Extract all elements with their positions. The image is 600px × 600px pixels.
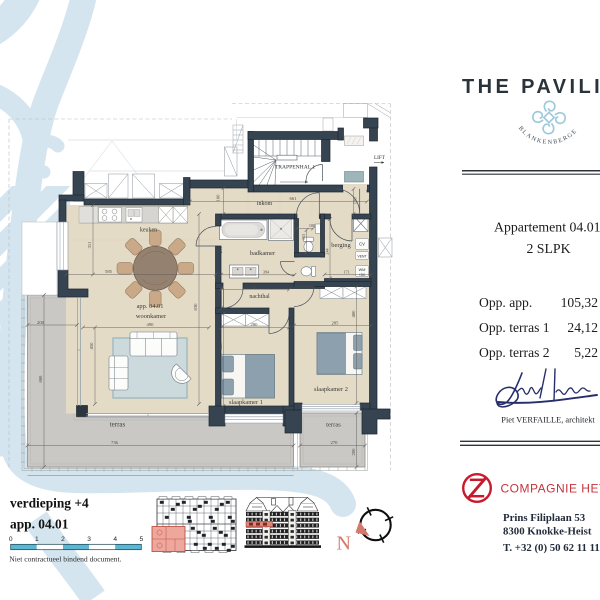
- svg-text:badkamer: badkamer: [250, 250, 276, 257]
- svg-text:app. 04.01: app. 04.01: [10, 517, 68, 532]
- svg-text:130: 130: [353, 197, 358, 205]
- svg-text:LIFT: LIFT: [374, 155, 386, 161]
- svg-text:berging: berging: [331, 242, 351, 249]
- svg-text:terras: terras: [326, 422, 341, 429]
- svg-text:130: 130: [216, 291, 221, 299]
- svg-text:394: 394: [263, 270, 270, 275]
- svg-text:888: 888: [38, 375, 43, 383]
- svg-text:420: 420: [218, 342, 223, 350]
- svg-text:736: 736: [111, 440, 119, 445]
- svg-text:CV: CV: [359, 242, 365, 247]
- svg-text:inkom: inkom: [257, 201, 273, 207]
- svg-text:Piet VERFAILLE, architekt: Piet VERFAILLE, architekt: [501, 416, 595, 425]
- svg-text:WM: WM: [359, 268, 366, 272]
- svg-text:24,12: 24,12: [567, 320, 598, 335]
- svg-text:1: 1: [35, 536, 39, 543]
- svg-text:T. +32 (0) 50 62 11 11.: T. +32 (0) 50 62 11 11.: [503, 542, 600, 554]
- svg-text:171: 171: [343, 270, 349, 275]
- svg-text:Appartement 04.01: Appartement 04.01: [494, 220, 600, 235]
- svg-text:830: 830: [193, 303, 198, 311]
- svg-text:661: 661: [290, 196, 298, 201]
- svg-text:slaapkamer 1: slaapkamer 1: [229, 399, 263, 406]
- svg-text:100: 100: [216, 194, 221, 202]
- svg-text:8300 Knokke-Heist: 8300 Knokke-Heist: [503, 526, 592, 538]
- svg-text:Prins Filiplaan 53: Prins Filiplaan 53: [503, 512, 586, 524]
- svg-text:490: 490: [147, 322, 155, 327]
- svg-text:4: 4: [113, 536, 117, 543]
- svg-text:+DK: +DK: [359, 273, 366, 277]
- svg-text:480: 480: [351, 310, 356, 318]
- svg-text:153: 153: [301, 234, 306, 240]
- svg-text:slaapkamer 2: slaapkamer 2: [314, 386, 348, 393]
- svg-text:terras: terras: [110, 421, 126, 429]
- svg-text:5,22: 5,22: [574, 345, 598, 360]
- svg-text:Opp. terras 1: Opp. terras 1: [479, 320, 550, 335]
- svg-text:woonkamer: woonkamer: [136, 313, 167, 320]
- svg-text:200: 200: [351, 448, 356, 456]
- svg-text:Opp. terras 2: Opp. terras 2: [479, 345, 550, 360]
- svg-text:2 SLPK: 2 SLPK: [526, 241, 570, 256]
- svg-text:100: 100: [309, 223, 315, 228]
- svg-text:TRAPPENHAL 1: TRAPPENHAL 1: [275, 164, 316, 170]
- svg-text:285: 285: [332, 320, 340, 325]
- svg-text:5: 5: [139, 536, 143, 543]
- svg-text:585: 585: [105, 269, 113, 274]
- svg-text:311: 311: [87, 241, 92, 248]
- svg-text:Opp. app.: Opp. app.: [479, 295, 532, 310]
- svg-text:N: N: [337, 533, 351, 555]
- svg-text:keuken: keuken: [140, 228, 157, 234]
- svg-text:244: 244: [218, 246, 223, 253]
- svg-text:244: 244: [325, 247, 330, 254]
- svg-text:200: 200: [37, 320, 45, 325]
- svg-text:THE PAVILION: THE PAVILION: [462, 76, 600, 98]
- svg-text:COMPAGNIE HET ZOUTE: COMPAGNIE HET ZOUTE: [501, 482, 600, 496]
- svg-text:450: 450: [89, 342, 94, 350]
- svg-text:105,32: 105,32: [561, 295, 599, 310]
- svg-text:2: 2: [61, 536, 65, 543]
- svg-text:Niet contractueel bindend docu: Niet contractueel bindend document.: [9, 555, 121, 564]
- svg-text:VENT: VENT: [357, 254, 366, 258]
- svg-text:280: 280: [251, 322, 259, 327]
- svg-text:270: 270: [331, 440, 339, 445]
- svg-text:app. 04.01: app. 04.01: [137, 303, 164, 310]
- svg-text:0: 0: [9, 536, 13, 543]
- svg-text:3: 3: [87, 536, 91, 543]
- svg-text:280: 280: [251, 284, 259, 289]
- svg-text:nachthal: nachthal: [249, 294, 270, 300]
- svg-text:verdieping +4: verdieping +4: [10, 496, 89, 511]
